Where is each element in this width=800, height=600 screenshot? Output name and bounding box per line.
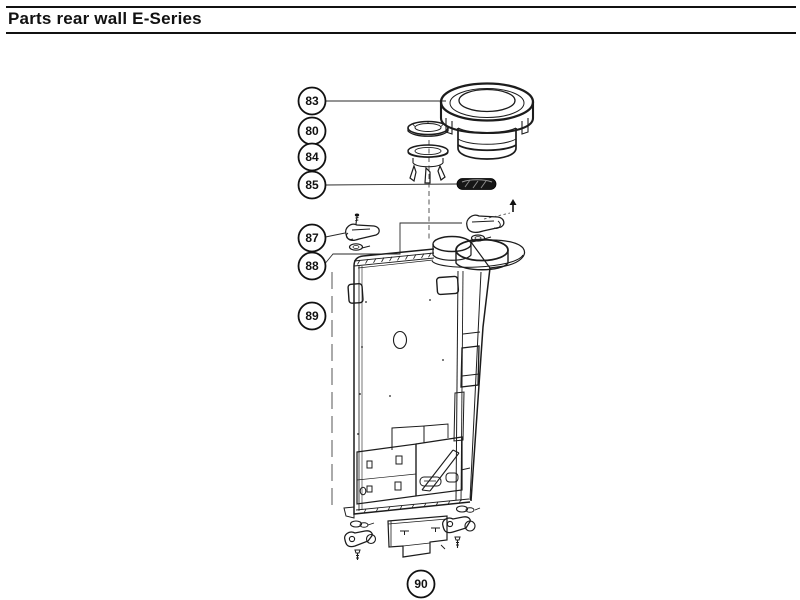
bottom-left-bracket-drawing: [345, 531, 376, 560]
callout-83: 83: [299, 88, 326, 115]
screw-icon: [455, 537, 460, 548]
part-80-ring-drawing: [408, 122, 448, 137]
svg-text:85: 85: [305, 178, 319, 192]
callout-88: 88: [299, 253, 326, 280]
callout-80: 80: [299, 118, 326, 145]
svg-text:83: 83: [305, 94, 319, 108]
svg-text:88: 88: [305, 259, 319, 273]
part-87-right-bracket-drawing: [467, 199, 517, 232]
part-87-left-bracket-drawing: [346, 214, 380, 241]
callout-84: 84: [299, 144, 326, 171]
up-arrow-icon: [510, 199, 517, 212]
screw-icon: [355, 550, 360, 560]
part-88-left-clip-drawing: [350, 244, 371, 250]
svg-text:89: 89: [305, 309, 319, 323]
leader-line-87: [326, 233, 346, 237]
part-85-spring-drawing: [457, 179, 496, 190]
right-duct-drawing: [454, 271, 481, 501]
parts-diagram-page: Parts rear wall E-Series: [0, 0, 800, 600]
bottom-center-plate-drawing: [388, 516, 447, 557]
svg-text:84: 84: [305, 150, 319, 164]
callout-85: 85: [299, 172, 326, 199]
bottom-right-clip-drawing: [457, 506, 481, 512]
callout-89: 89: [299, 303, 326, 330]
part-83-flue-collar-drawing: [441, 84, 533, 160]
callout-90: 90: [408, 571, 435, 598]
inner-bracket-assembly-drawing: [357, 424, 462, 504]
leader-lines: [326, 101, 463, 263]
rear-wall-panel-drawing: [344, 249, 490, 518]
bottom-left-clip-drawing: [351, 521, 375, 527]
svg-text:87: 87: [305, 231, 319, 245]
leader-line-85: [326, 184, 459, 185]
svg-text:80: 80: [305, 124, 319, 138]
part-84-fitting-drawing: [408, 145, 448, 183]
svg-text:90: 90: [414, 577, 428, 591]
exploded-parts-diagram: 83 80 84 85 87 88 89 90: [0, 0, 800, 600]
callout-87: 87: [299, 225, 326, 252]
